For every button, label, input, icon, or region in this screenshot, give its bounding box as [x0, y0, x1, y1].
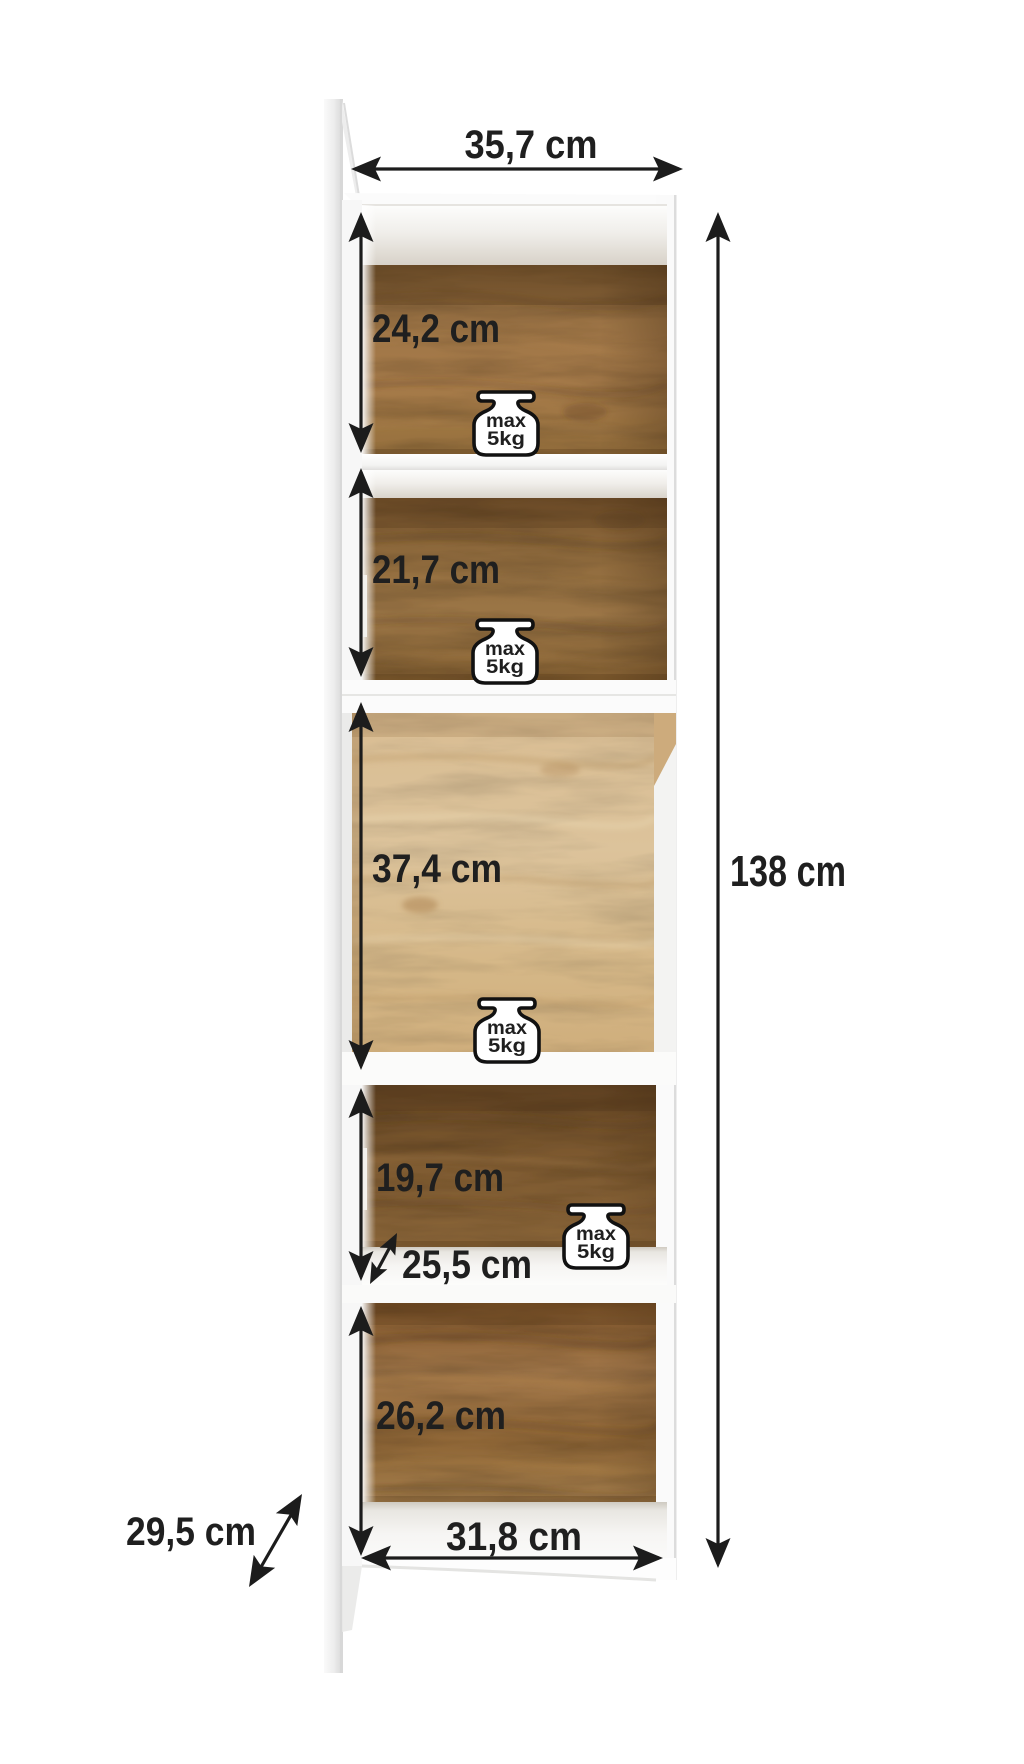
svg-text:29,5 cm: 29,5 cm: [126, 1510, 256, 1554]
svg-text:5kg: 5kg: [487, 429, 525, 450]
svg-text:5kg: 5kg: [486, 657, 524, 678]
svg-text:26,2 cm: 26,2 cm: [376, 1394, 506, 1438]
svg-text:24,2 cm: 24,2 cm: [372, 307, 500, 351]
svg-text:35,7 cm: 35,7 cm: [465, 123, 598, 167]
svg-text:21,7 cm: 21,7 cm: [372, 548, 500, 592]
svg-text:5kg: 5kg: [577, 1242, 615, 1263]
svg-text:25,5 cm: 25,5 cm: [402, 1243, 532, 1287]
svg-text:138 cm: 138 cm: [730, 847, 846, 896]
svg-text:5kg: 5kg: [488, 1036, 526, 1057]
svg-text:19,7 cm: 19,7 cm: [376, 1156, 504, 1200]
svg-text:37,4 cm: 37,4 cm: [372, 847, 502, 891]
svg-text:31,8 cm: 31,8 cm: [446, 1515, 582, 1559]
